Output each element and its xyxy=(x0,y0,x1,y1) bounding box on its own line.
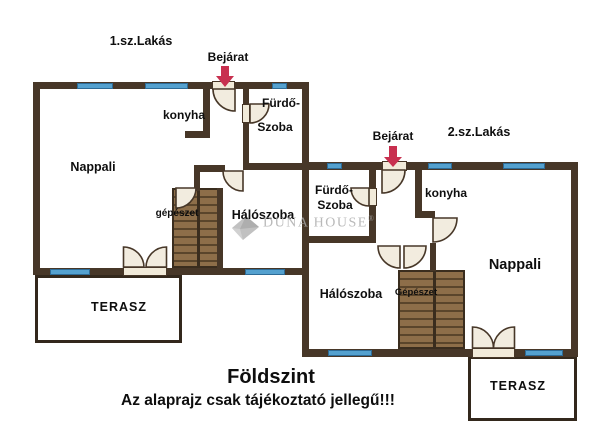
apartment1-bath-label-line1: Fürdő- xyxy=(262,97,300,110)
wall-apt2-bath-right-upper xyxy=(369,170,376,188)
bath-door-threshold-apt1 xyxy=(242,104,250,123)
french-door-leaf xyxy=(473,327,494,348)
apartment2-living-label: Nappali xyxy=(489,258,541,273)
wall-apt1-bottom-right xyxy=(167,268,309,275)
apartment1-bath-label-line2: Szoba xyxy=(257,121,292,134)
wall-apt2-hall-door-vertical xyxy=(430,243,436,271)
door-arc xyxy=(433,218,457,242)
apartment2-kitchen-label: konyha xyxy=(425,187,467,200)
stair-divider xyxy=(197,190,200,266)
door-arc xyxy=(404,246,426,268)
disclaimer-text: Az alaprajz csak tájékoztató jellegű!!! xyxy=(121,393,395,409)
wall-apt1-bath-left-upper xyxy=(243,89,249,104)
wall-apt1-kitchen-horizontal xyxy=(185,131,210,138)
apartment2-utility-label: Gépészet xyxy=(395,288,437,298)
wall-apt1-stairs-right xyxy=(217,188,223,268)
window xyxy=(327,163,342,169)
floor-title: Földszint xyxy=(227,367,315,388)
entrance-threshold-apt1 xyxy=(212,81,235,90)
wall-apt2-top-left xyxy=(302,162,382,170)
window xyxy=(272,83,287,89)
wall-apt2-bath-bottom xyxy=(309,236,376,243)
apartment2-entrance-label: Bejárat xyxy=(373,130,414,143)
window xyxy=(245,269,285,275)
apartment2-bath-label-line1: Fürdő- xyxy=(315,184,353,197)
french-door-leaf xyxy=(124,247,145,267)
stairs-apartment2 xyxy=(398,270,465,349)
window xyxy=(328,350,372,356)
apartment1-title: 1.sz.Lakás xyxy=(110,35,173,48)
door-arc xyxy=(382,170,405,193)
french-door-leaf xyxy=(146,247,167,267)
window xyxy=(428,163,452,169)
stair-divider xyxy=(433,272,436,347)
window xyxy=(145,83,188,89)
wall-apt1-left xyxy=(33,82,40,275)
wall-apt1-bath-bottom xyxy=(243,163,309,170)
window xyxy=(503,163,545,169)
apartment2-bedroom-label: Hálószoba xyxy=(320,288,383,301)
terrace-door-threshold-apt2 xyxy=(472,348,515,358)
window xyxy=(50,269,90,275)
apartment2-terrace-label: TERASZ xyxy=(490,380,546,393)
french-door-leaf xyxy=(494,327,515,348)
window xyxy=(525,350,563,356)
entrance-threshold-apt2 xyxy=(382,161,407,171)
wall-apt2-kitchen-horizontal xyxy=(415,211,435,218)
door-arc xyxy=(351,188,369,206)
door-arc xyxy=(213,89,235,111)
stairs-apartment1 xyxy=(172,188,220,268)
wall-apt2-right xyxy=(571,162,578,357)
apartment1-living-label: Nappali xyxy=(70,161,115,174)
bath-door-threshold-apt2 xyxy=(368,188,377,206)
apartment1-kitchen-label: konyha xyxy=(163,109,205,122)
watermark: DUNA HOUSE® xyxy=(232,214,375,232)
registered-mark: ® xyxy=(368,214,376,223)
terrace-door-threshold-apt1 xyxy=(123,267,167,276)
door-arc xyxy=(223,171,243,191)
wall-apt1-bath-left-lower xyxy=(243,123,249,165)
door-arc xyxy=(378,246,400,268)
apartment2-title: 2.sz.Lakás xyxy=(448,126,511,139)
wall-apt1-hall-vertical xyxy=(194,165,200,191)
floor-plan: 1.sz.Lakás Bejárat konyha Fürdő- Szoba N… xyxy=(0,0,600,445)
apartment1-terrace-label: TERASZ xyxy=(91,301,147,314)
apartment1-utility-label: gépészet xyxy=(156,209,199,220)
apartment2-bath-label-line2: Szoba xyxy=(317,199,352,212)
window xyxy=(77,83,113,89)
apartment1-entrance-label: Bejárat xyxy=(208,51,249,64)
watermark-brand: DUNA HOUSE® xyxy=(263,214,375,232)
